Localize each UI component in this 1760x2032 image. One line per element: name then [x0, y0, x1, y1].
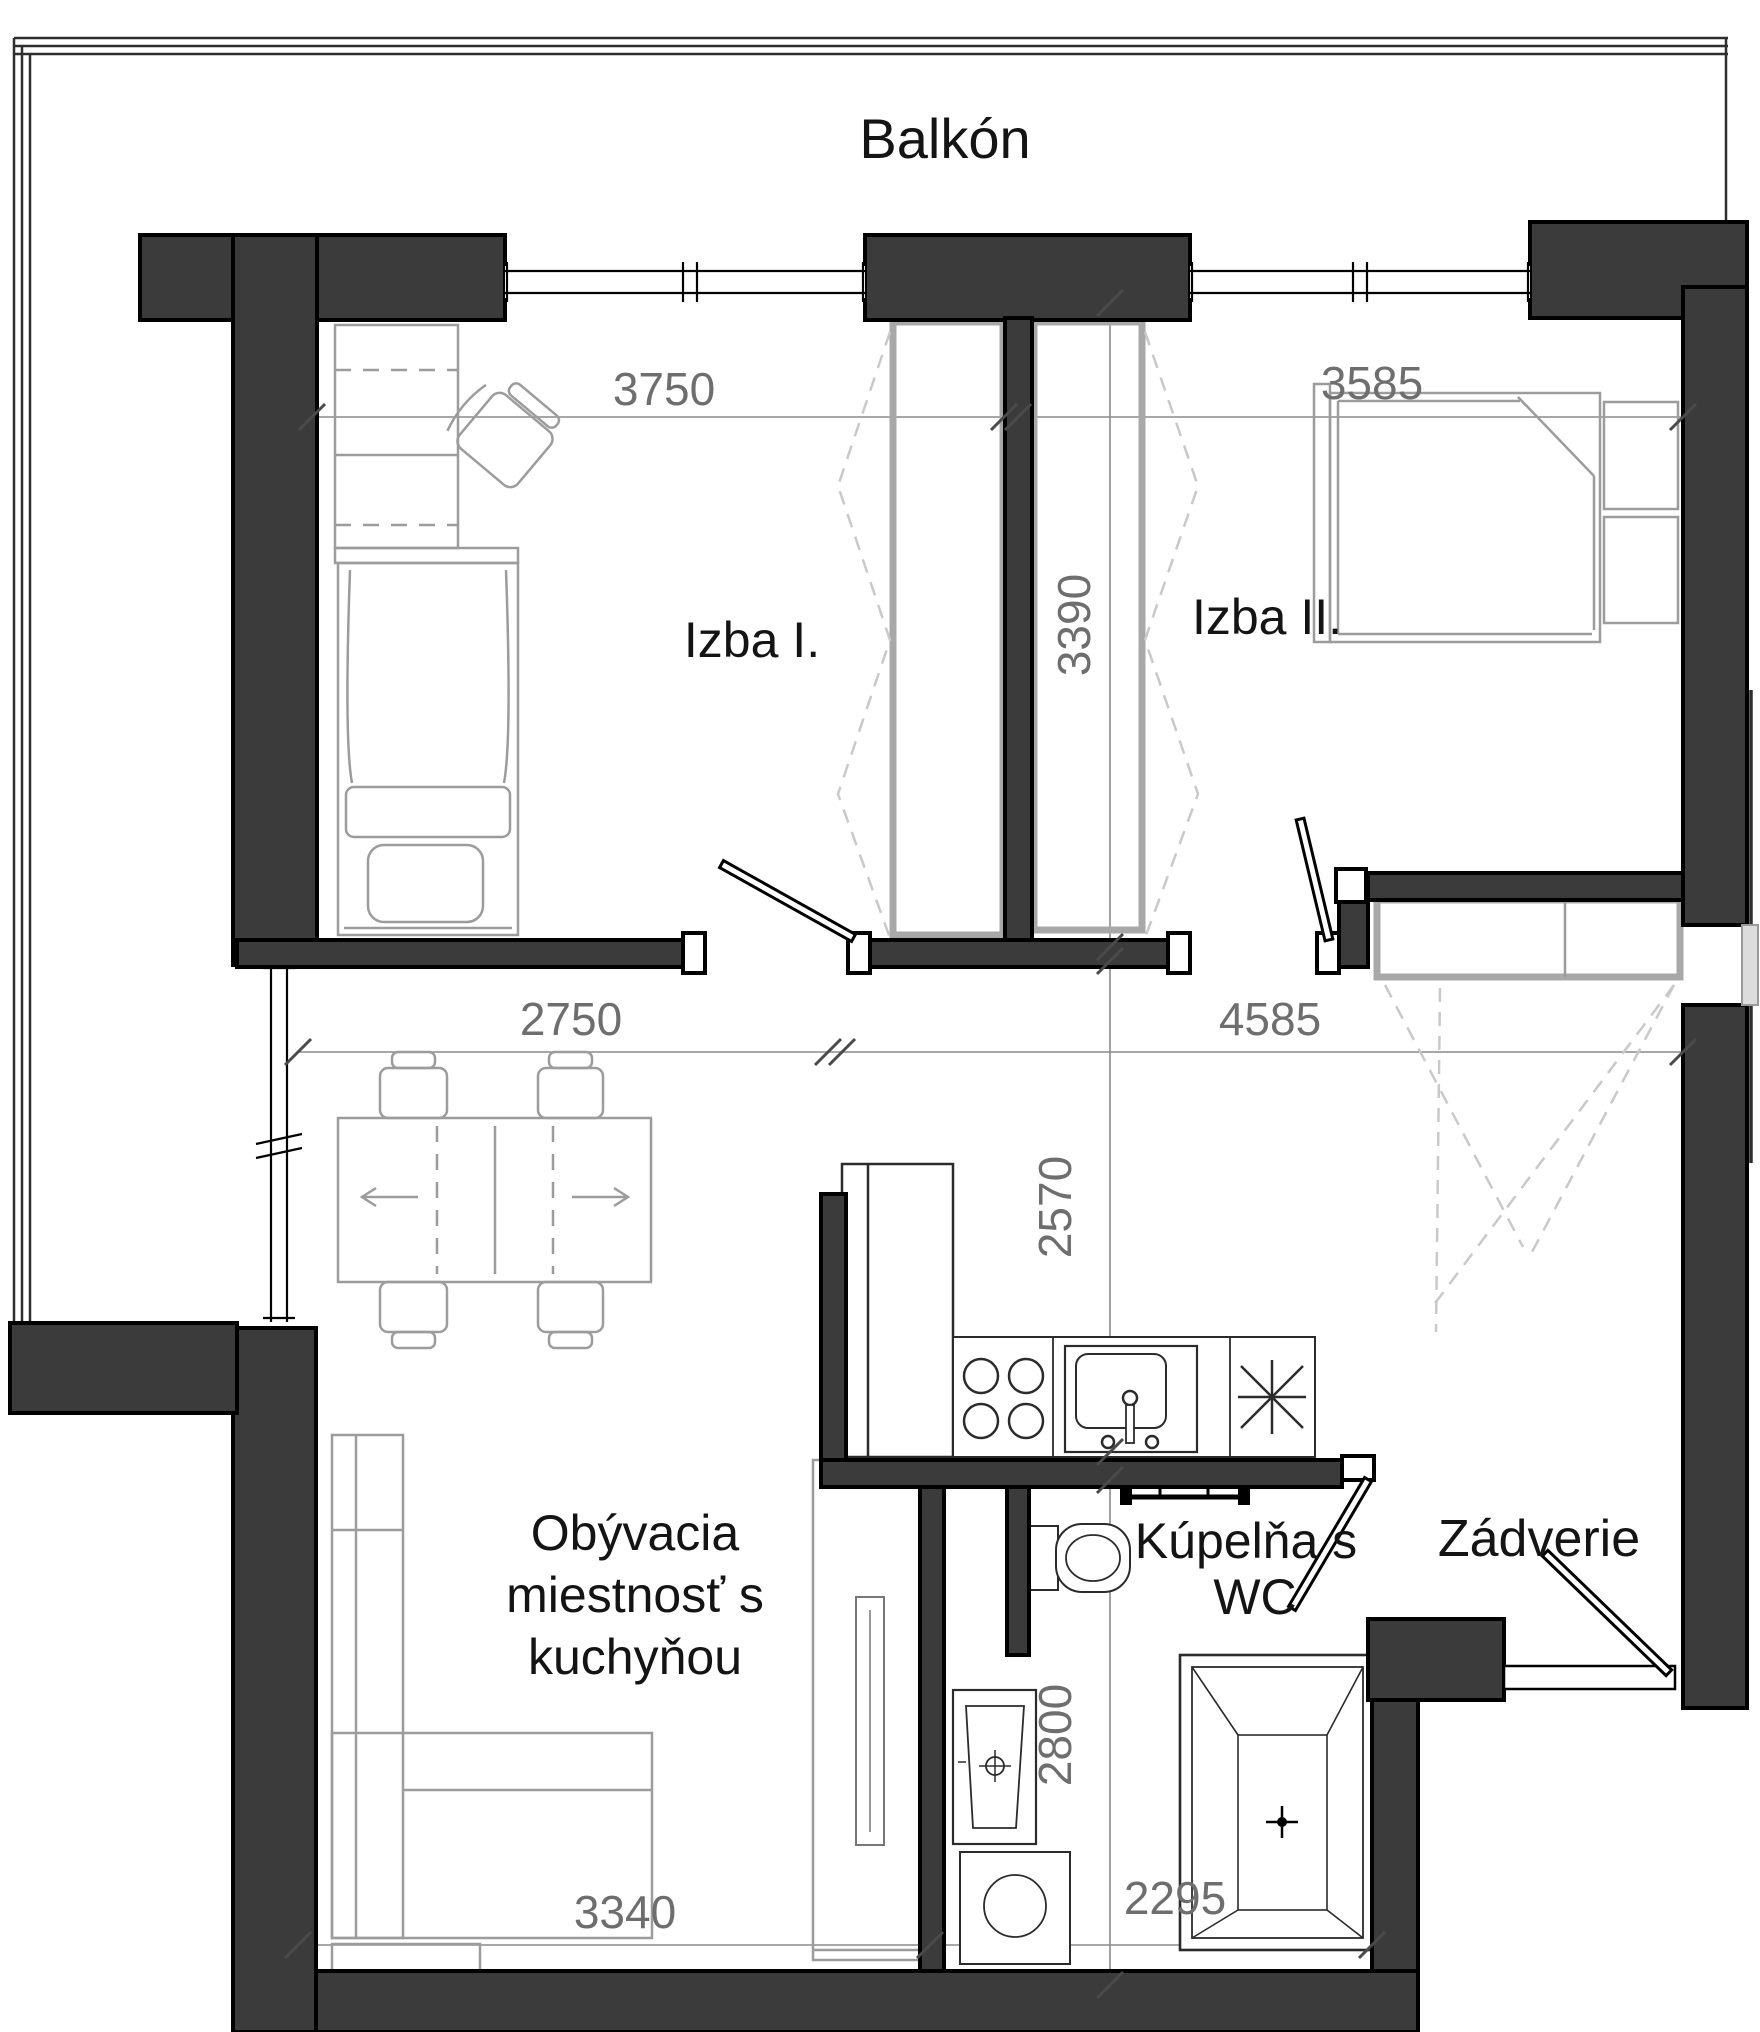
- washbasin-icon: [953, 1690, 1036, 1844]
- wall-right-upper: [1683, 287, 1747, 925]
- window-room2: [1190, 262, 1530, 302]
- hall-wardrobe-swing: [1436, 988, 1440, 1332]
- washing-machine-icon: [960, 1852, 1070, 1964]
- bathroom-label: Kúpelňa s WC: [1135, 1513, 1357, 1625]
- wall-hall-north: [1368, 873, 1683, 900]
- dining-table: [338, 1052, 651, 1348]
- wall-mid-center: [870, 940, 1168, 967]
- nightstand-2: [1604, 517, 1678, 623]
- dim-room1-width: 3750: [613, 363, 715, 415]
- balcony-divider-slab: [10, 1323, 237, 1413]
- window-room1: [505, 262, 865, 302]
- wall-top-left: [140, 235, 505, 320]
- wall-mid-left: [237, 940, 683, 967]
- door-room1: [725, 866, 850, 936]
- floor-plan-page: Balkón Izba I. Izba II. Obývacia miestno…: [0, 0, 1760, 2032]
- door-entrance: [1504, 1556, 1675, 1689]
- chair: [538, 1068, 603, 1118]
- dim-wardrobe-wall-depth: 3390: [1048, 574, 1100, 676]
- wall-bottom: [233, 1971, 1418, 2032]
- nightstand-1: [1604, 402, 1678, 509]
- tv-sideboard: [813, 1460, 929, 1960]
- living-room-label-line1: Obývacia: [531, 1505, 740, 1561]
- hall-wardrobe: [1377, 900, 1680, 977]
- window-living-room: [256, 965, 302, 1322]
- entry-hall-label: Zádverie: [1438, 1510, 1640, 1568]
- dim-living-window-width: 2750: [520, 993, 622, 1045]
- entry-hall-furniture: [1377, 900, 1680, 1332]
- wardrobe-room1-door-swing: [838, 332, 890, 938]
- wall-kitchen-left: [821, 1194, 846, 1460]
- dim-bathroom-bottom-width: 2295: [1124, 1872, 1226, 1924]
- dim-hall-span-width: 4585: [1219, 993, 1321, 1045]
- hall-wardrobe-swing: [1385, 985, 1523, 1247]
- wall-left-lower: [233, 1328, 316, 2032]
- wall-shaft-side: [1007, 1487, 1029, 1655]
- dim-living-bottom-width: 3340: [574, 1886, 676, 1938]
- window-entry-east: [1742, 925, 1758, 1005]
- living-room-label: Obývacia miestnosť s kuchyňou: [506, 1505, 764, 1685]
- bed-room1: [335, 548, 518, 935]
- chair: [380, 1282, 447, 1332]
- wall-entry-stub: [1368, 1619, 1504, 1700]
- room2-label: Izba II.: [1192, 589, 1342, 645]
- balcony-label: Balkón: [859, 107, 1030, 170]
- living-room-label-line3: kuchyňou: [528, 1629, 742, 1685]
- wall-left-upper: [233, 235, 317, 965]
- tall-cabinet: [842, 1164, 953, 1457]
- dim-bathroom-depth: 2800: [1029, 1684, 1081, 1786]
- desk-chair: [441, 365, 567, 491]
- floor-plan-svg: Balkón Izba I. Izba II. Obývacia miestno…: [0, 0, 1760, 2032]
- bed-room2: [1314, 384, 1600, 642]
- hall-wardrobe-swing: [1430, 985, 1674, 1310]
- desk: [335, 325, 458, 548]
- wall-kitchen-south: [821, 1460, 1342, 1487]
- wall-top-middle: [865, 235, 1190, 320]
- hall-wardrobe-swing: [1532, 985, 1674, 1252]
- kitchen-sink-icon: [1065, 1346, 1197, 1452]
- wardrobe-room2-door-swing: [1145, 332, 1198, 938]
- bathroom-label-line1: Kúpelňa s: [1135, 1513, 1357, 1569]
- dim-kitchen-depth: 2570: [1029, 1156, 1081, 1258]
- toilet-icon: [1030, 1524, 1130, 1592]
- wall-bath-west: [920, 1487, 944, 1973]
- room1-label: Izba I.: [684, 612, 820, 668]
- chair: [538, 1282, 603, 1332]
- wardrobe-room1: [893, 322, 1003, 935]
- bathroom-label-line2: WC: [1213, 1569, 1296, 1625]
- dim-room2-width: 3585: [1321, 357, 1423, 409]
- chair: [380, 1068, 447, 1118]
- wall-right-lower: [1683, 1005, 1747, 1708]
- door-room2: [1301, 823, 1328, 936]
- wall-mid-step: [1339, 900, 1368, 967]
- living-room-label-line2: miestnosť s: [506, 1567, 764, 1623]
- room2-furniture: [1314, 384, 1678, 642]
